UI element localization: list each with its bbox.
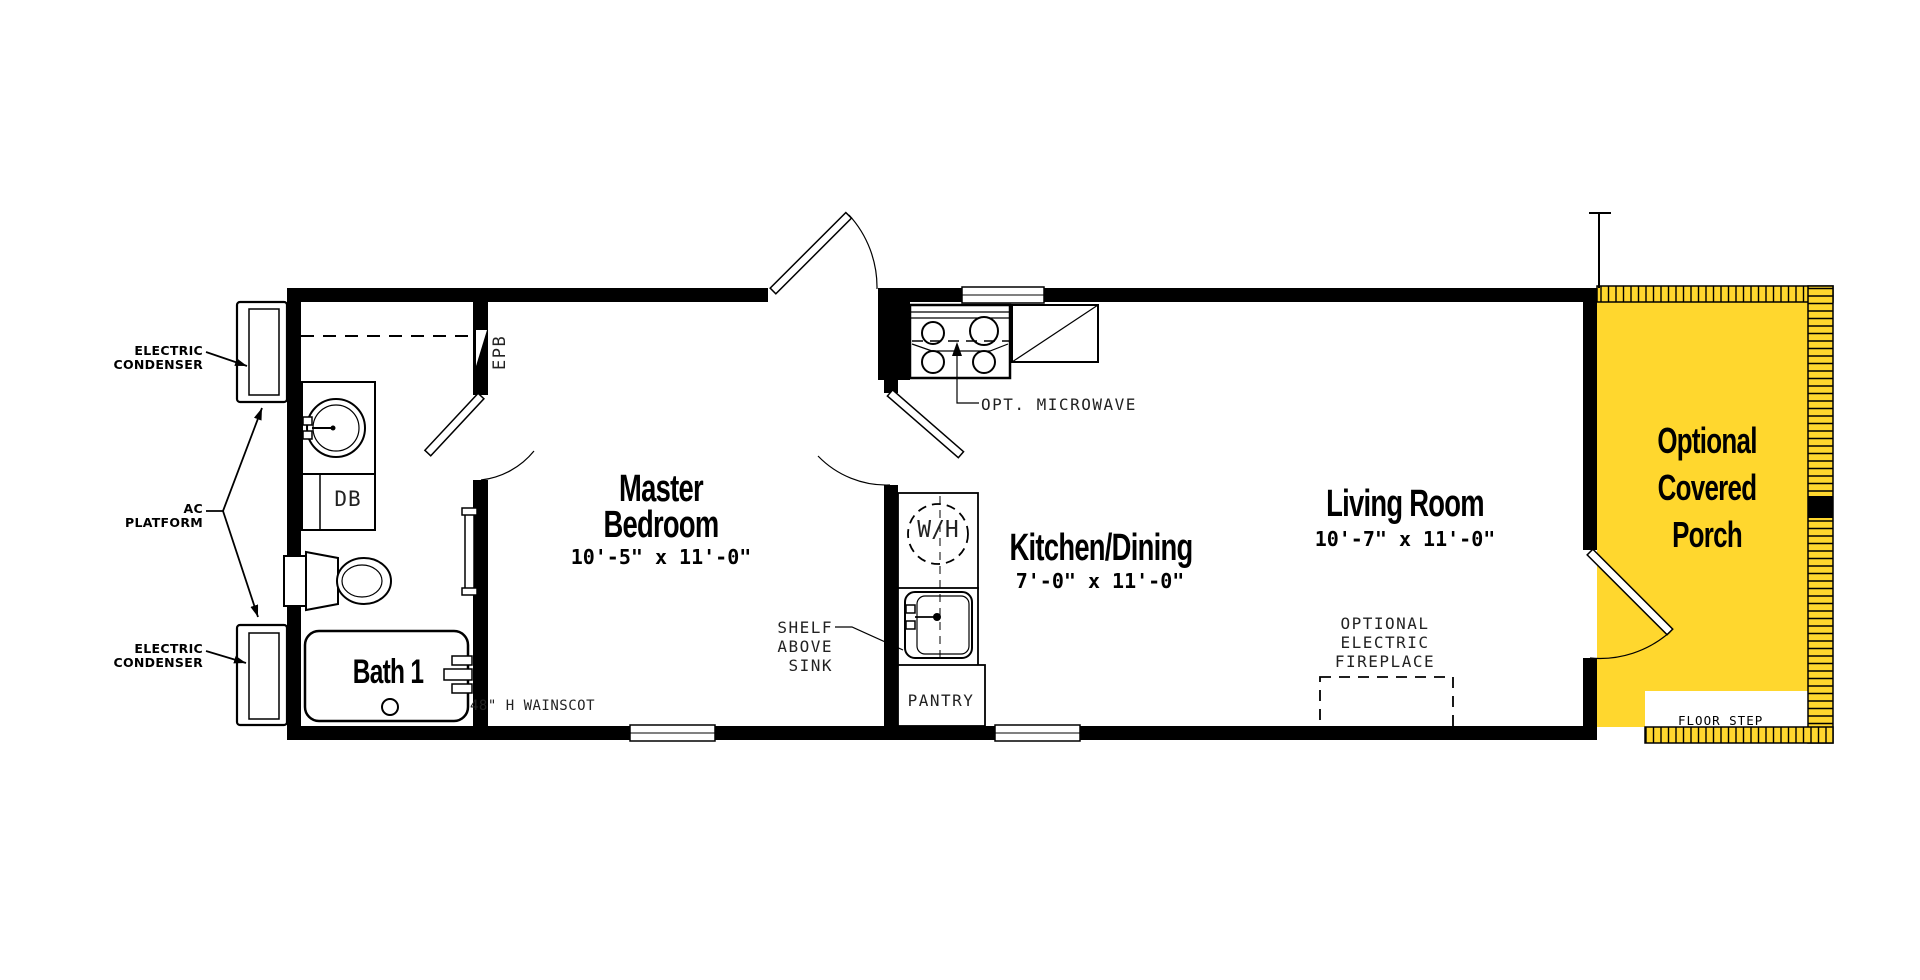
refrigerator bbox=[1012, 305, 1098, 362]
wall-living-porch-lower bbox=[1583, 658, 1597, 726]
label-optional-electric-fireplace: OPTIONAL ELECTRIC FIREPLACE bbox=[1305, 614, 1465, 671]
label-bath-title: Bath 1 bbox=[316, 653, 460, 692]
room-title-master-bedroom: Master Bedroom bbox=[553, 471, 769, 543]
porch-downspout-line bbox=[1589, 213, 1611, 288]
label-epb: EPB bbox=[491, 335, 510, 370]
wall-living-porch-upper bbox=[1583, 302, 1597, 550]
label-pantry: PANTRY bbox=[891, 691, 991, 710]
range-burner bbox=[973, 351, 995, 373]
entry-door-opening bbox=[768, 288, 878, 302]
wall-bath-bedroom-lower bbox=[473, 480, 488, 726]
label-electric-condenser-top: ELECTRIC CONDENSER bbox=[93, 344, 203, 372]
floor-plan-canvas: ELECTRIC CONDENSER AC PLATFORM ELECTRIC … bbox=[0, 0, 1920, 980]
window-bottom-bedroom bbox=[630, 725, 715, 741]
entry-door bbox=[770, 213, 877, 294]
dims-master-bedroom: 10'-5" x 11'-0" bbox=[511, 545, 811, 569]
room-title-kitchen-dining: Kitchen/Dining bbox=[957, 527, 1245, 570]
wall-bottom bbox=[287, 726, 1597, 740]
condenser-top bbox=[237, 302, 287, 402]
label-shelf-above-sink: SHELF ABOVE SINK bbox=[723, 618, 833, 675]
bedroom-door bbox=[818, 390, 964, 485]
room-title-porch: Optional Covered Porch bbox=[1613, 417, 1800, 558]
wall-bedroom-kitchen-column bbox=[878, 288, 910, 380]
bath-door bbox=[425, 393, 534, 480]
window-top bbox=[962, 287, 1044, 303]
wall-left bbox=[287, 288, 301, 740]
dims-living-room: 10'-7" x 11'-0" bbox=[1255, 527, 1555, 551]
range-burner bbox=[922, 351, 944, 373]
wall-bedroom-kitchen-lower bbox=[884, 485, 898, 726]
ac-platform-leader-arrows bbox=[206, 408, 262, 617]
porch-rail-post bbox=[1808, 496, 1833, 518]
kitchen-sink-counter bbox=[898, 588, 978, 666]
toilet bbox=[284, 552, 391, 610]
dims-kitchen-dining: 7'-0" x 11'-0" bbox=[950, 569, 1250, 593]
label-ac-platform: AC PLATFORM bbox=[93, 502, 203, 530]
condenser-bottom bbox=[237, 625, 287, 725]
label-electric-condenser-bottom: ELECTRIC CONDENSER bbox=[93, 642, 203, 670]
label-floor-step: FLOOR STEP bbox=[1678, 711, 1763, 730]
label-wainscot: 48" H WAINSCOT bbox=[470, 697, 595, 716]
window-bottom-kitchen bbox=[995, 725, 1080, 741]
fireplace-outline bbox=[1320, 677, 1453, 727]
label-opt-microwave: OPT. MICROWAVE bbox=[981, 395, 1137, 414]
room-title-living-room: Living Room bbox=[1261, 483, 1549, 526]
label-db: DB bbox=[318, 490, 378, 509]
towel-bar bbox=[462, 508, 477, 595]
wall-top bbox=[287, 288, 1597, 302]
porch-rail-top bbox=[1597, 286, 1833, 302]
